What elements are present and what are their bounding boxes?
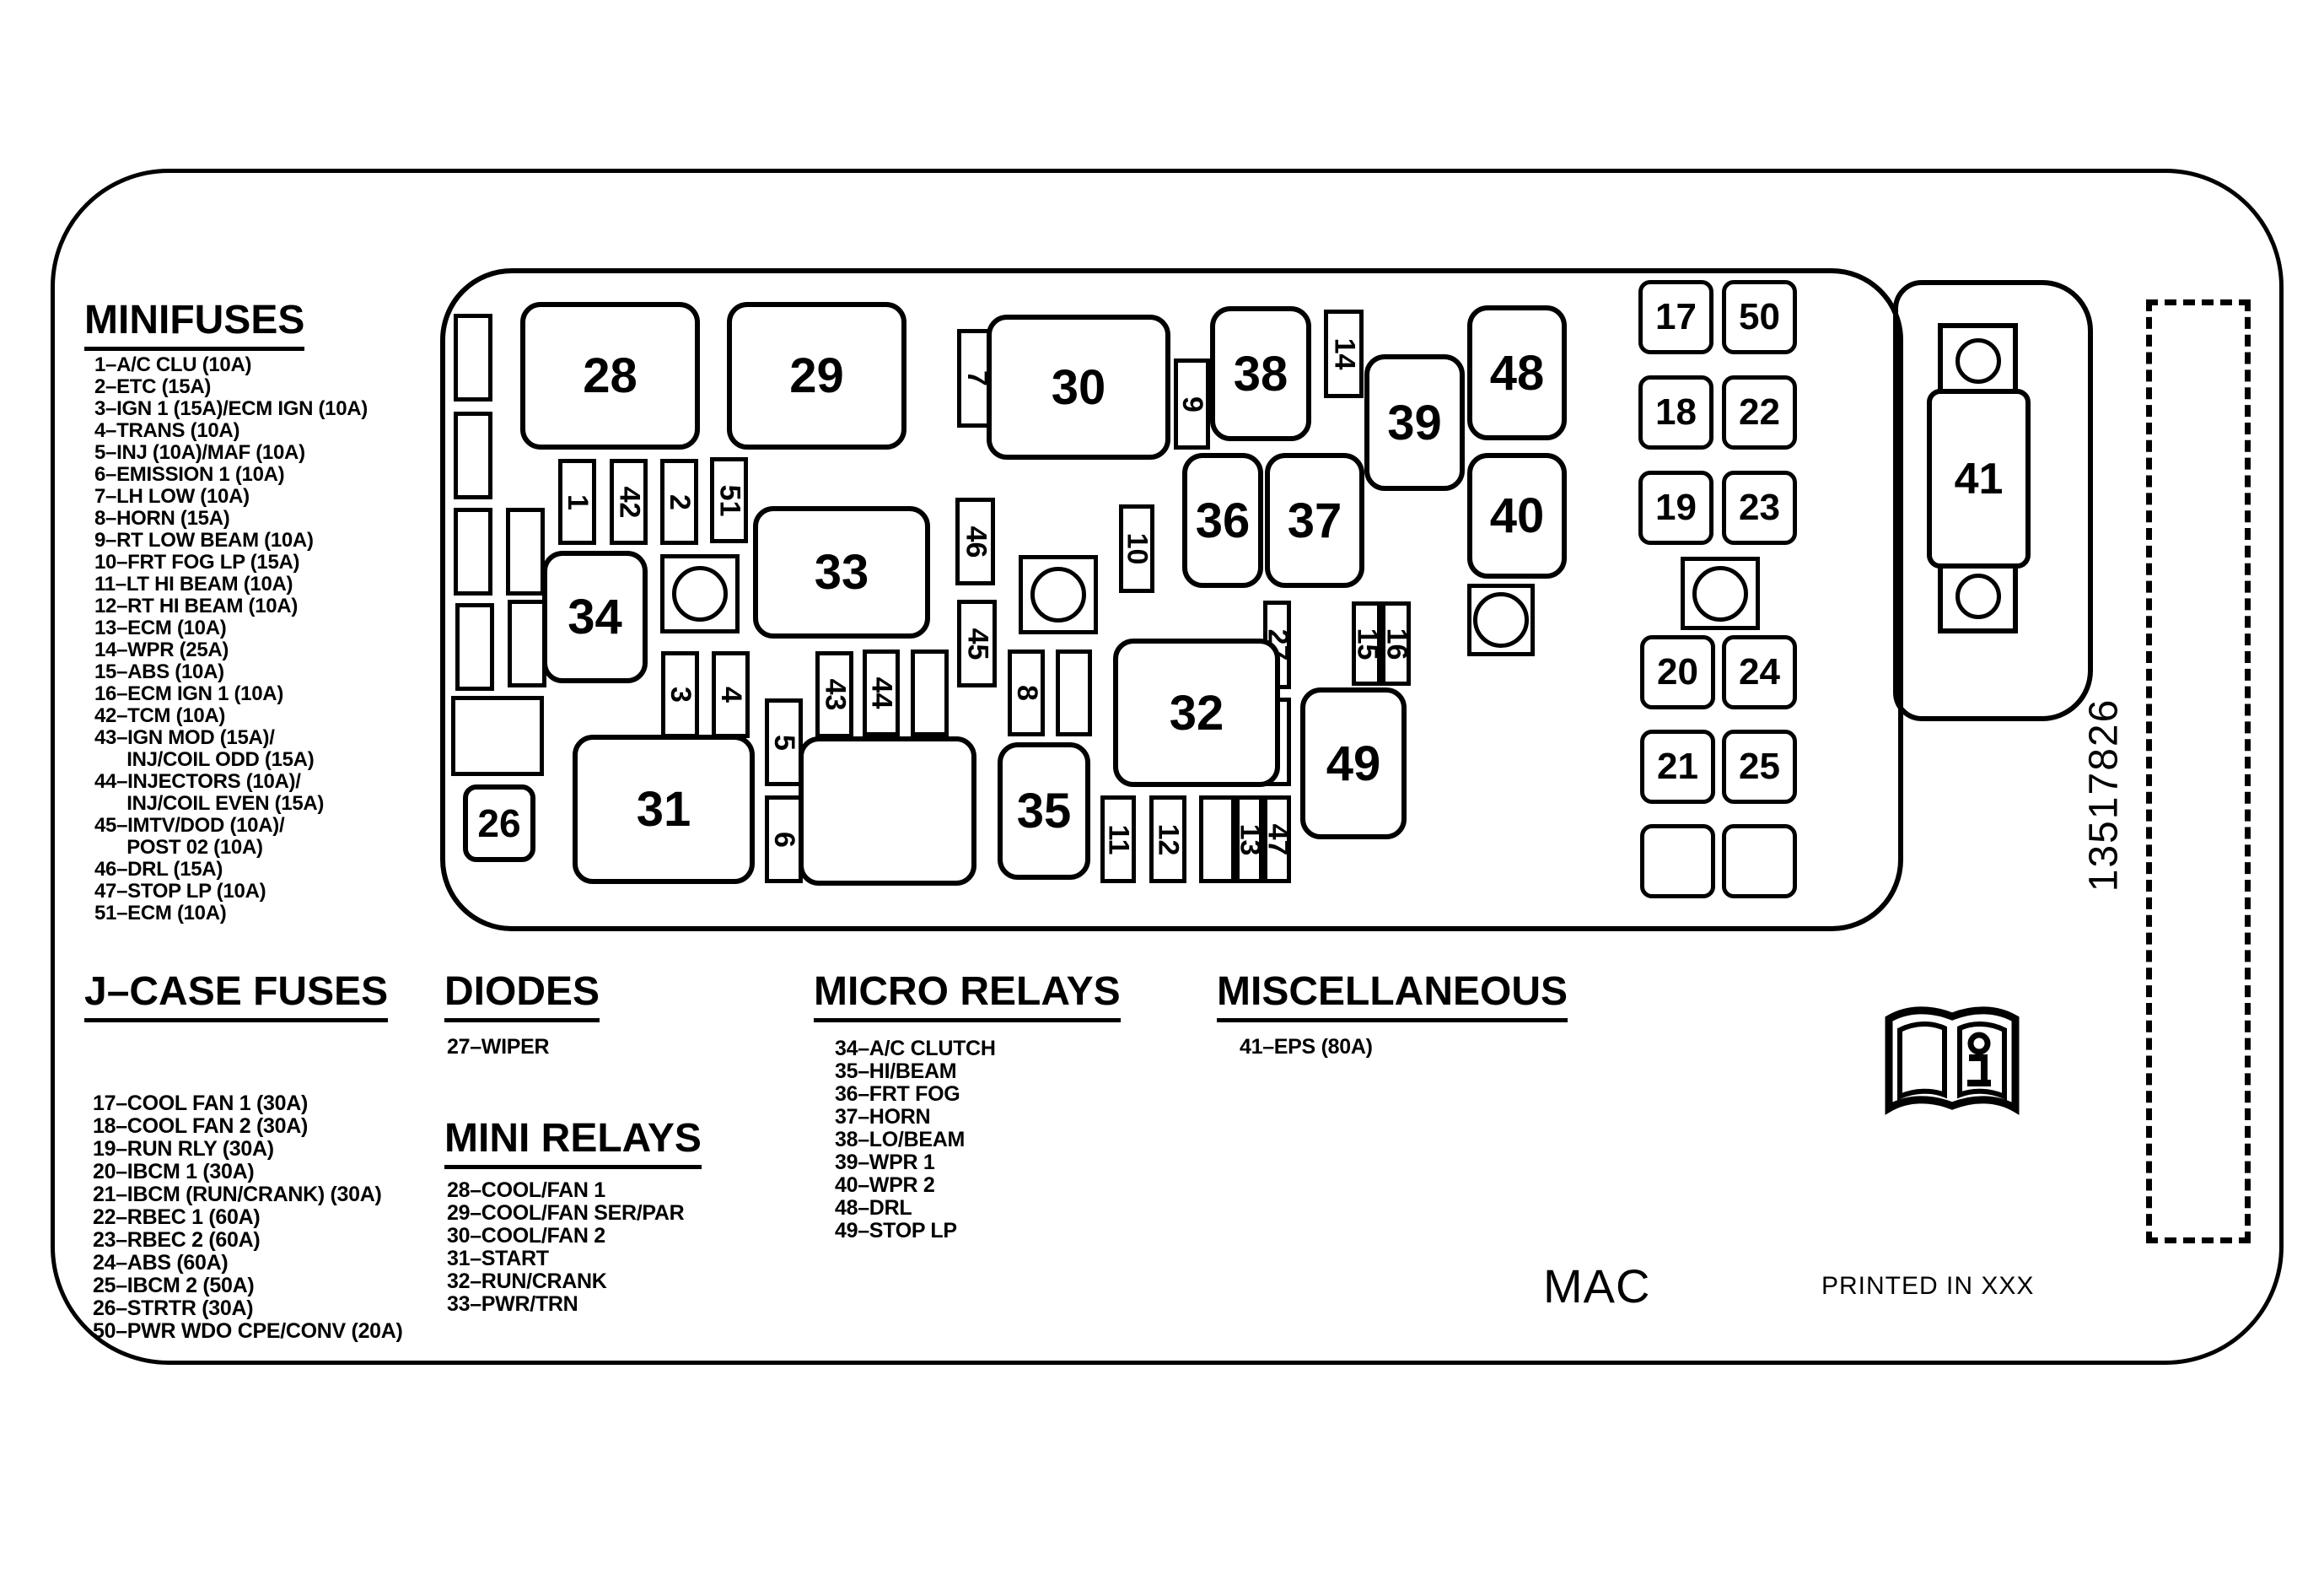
list-item: 41–EPS (80A) [1240, 1036, 1373, 1059]
relay-36: 36 [1182, 453, 1263, 588]
bolt-hole-icon [1955, 574, 2001, 619]
fuse-16: 16 [1381, 601, 1411, 686]
list-item: 42–TCM (10A) [94, 705, 368, 727]
relay-28: 28 [520, 302, 700, 450]
minifuses-list: 1–A/C CLU (10A)2–ETC (15A)3–IGN 1 (15A)/… [94, 354, 368, 924]
fuse-44: 44 [863, 650, 900, 736]
list-item: 1–A/C CLU (10A) [94, 354, 368, 376]
micro-relays-list: 34–A/C CLUTCH35–HI/BEAM36–FRT FOG37–HORN… [835, 1038, 996, 1242]
relay-40: 40 [1467, 453, 1567, 579]
list-item: POST 02 (10A) [94, 837, 368, 859]
list-item: 43–IGN MOD (15A)/ [94, 727, 368, 749]
fuse-13: 13 [1235, 795, 1263, 883]
list-item: 24–ABS (60A) [93, 1252, 403, 1275]
fuse-11: 11 [1100, 795, 1136, 883]
fuse-slot-empty [454, 314, 492, 402]
dashed-outline [2146, 299, 2251, 1243]
list-item: INJ/COIL ODD (15A) [94, 749, 368, 771]
section-title-jcase: J–CASE FUSES [84, 968, 388, 1022]
relay-39: 39 [1364, 354, 1465, 491]
fuse-9: 9 [1174, 358, 1210, 450]
relay-29: 29 [727, 302, 906, 450]
list-item: 40–WPR 2 [835, 1174, 996, 1197]
stud-circle-icon [1030, 567, 1086, 623]
jcase-19: 19 [1638, 471, 1713, 545]
relay-37: 37 [1265, 453, 1364, 588]
fuse-45: 45 [957, 600, 997, 687]
list-item: 15–ABS (10A) [94, 661, 368, 683]
fuse-slot-empty [911, 650, 949, 736]
maxi-fuse-41-bottom-tab [1938, 558, 2018, 633]
fuse-slot-empty [1199, 795, 1235, 883]
list-item: INJ/COIL EVEN (15A) [94, 793, 368, 815]
relay-38: 38 [1210, 306, 1311, 441]
stud-post [660, 554, 740, 633]
list-item: 21–IBCM (RUN/CRANK) (30A) [93, 1183, 403, 1206]
list-item: 16–ECM IGN 1 (10A) [94, 683, 368, 705]
list-item: 31–START [447, 1248, 684, 1270]
list-item: 35–HI/BEAM [835, 1060, 996, 1083]
jcase-25: 25 [1722, 730, 1797, 804]
owner-manual-book-icon [1882, 1004, 2022, 1122]
fuse-43: 43 [815, 651, 853, 738]
list-item: 27–WIPER [447, 1036, 549, 1059]
fuse-slot-empty [506, 508, 545, 596]
relay-26: 26 [463, 784, 535, 862]
list-item: 44–INJECTORS (10A)/ [94, 771, 368, 793]
stud-circle-icon [1473, 592, 1529, 648]
section-title-minifuses: MINIFUSES [84, 297, 304, 351]
list-item: 26–STRTR (30A) [93, 1297, 403, 1320]
list-item: 50–PWR WDO CPE/CONV (20A) [93, 1320, 403, 1343]
list-item: 17–COOL FAN 1 (30A) [93, 1092, 403, 1115]
jcase-50: 50 [1722, 280, 1797, 354]
list-item: 3–IGN 1 (15A)/ECM IGN (10A) [94, 398, 368, 420]
part-number: 13517826 [2081, 644, 2128, 947]
fuse-10: 10 [1119, 504, 1154, 593]
relay-33: 33 [753, 506, 930, 639]
fuse-slot-empty [454, 508, 492, 596]
list-item: 39–WPR 1 [835, 1151, 996, 1174]
fuse-4: 4 [712, 651, 750, 738]
fuse-5: 5 [765, 698, 803, 786]
list-item: 47–STOP LP (10A) [94, 881, 368, 903]
list-item: 34–A/C CLUTCH [835, 1038, 996, 1060]
list-item: 32–RUN/CRANK [447, 1270, 684, 1293]
fuse-47: 47 [1263, 795, 1291, 883]
relay-32: 32 [1113, 639, 1280, 787]
brand-text: MAC [1543, 1259, 1650, 1313]
relay-31: 31 [573, 735, 755, 884]
list-item: 28–COOL/FAN 1 [447, 1179, 684, 1202]
list-item: 25–IBCM 2 (50A) [93, 1275, 403, 1297]
relay-34: 34 [542, 551, 648, 683]
relay-35: 35 [998, 742, 1090, 880]
section-title-micro-relays: MICRO RELAYS [814, 968, 1121, 1022]
jcase-17: 17 [1638, 280, 1713, 354]
jcase-23: 23 [1722, 471, 1797, 545]
relay-30: 30 [987, 315, 1170, 460]
list-item: 46–DRL (15A) [94, 859, 368, 881]
fuse-46: 46 [955, 498, 995, 585]
stud-circle-icon [672, 566, 728, 622]
relay-49: 49 [1300, 687, 1407, 839]
relay-slot-empty [451, 696, 544, 776]
list-item: 18–COOL FAN 2 (30A) [93, 1115, 403, 1138]
stud-post [1467, 584, 1535, 656]
list-item: 30–COOL/FAN 2 [447, 1225, 684, 1248]
section-title-miscellaneous: MISCELLANEOUS [1217, 968, 1568, 1022]
list-item: 36–FRT FOG [835, 1083, 996, 1106]
fuse-slot-empty [1056, 650, 1092, 736]
fuse-1: 1 [558, 459, 596, 545]
list-item: 8–HORN (15A) [94, 508, 368, 530]
fuse-3: 3 [661, 651, 699, 738]
list-item: 38–LO/BEAM [835, 1129, 996, 1151]
fuse-42: 42 [610, 459, 648, 545]
list-item: 6–EMISSION 1 (10A) [94, 464, 368, 486]
list-item: 4–TRANS (10A) [94, 420, 368, 442]
list-item: 14–WPR (25A) [94, 639, 368, 661]
fuse-slot-empty [508, 600, 546, 687]
fuse-14: 14 [1324, 310, 1364, 398]
list-item: 13–ECM (10A) [94, 617, 368, 639]
list-item: 11–LT HI BEAM (10A) [94, 574, 368, 596]
jcase-list: 17–COOL FAN 1 (30A)18–COOL FAN 2 (30A)19… [93, 1092, 403, 1343]
list-item: 9–RT LOW BEAM (10A) [94, 530, 368, 552]
fuse-12: 12 [1149, 795, 1186, 883]
fuse-8: 8 [1008, 650, 1045, 736]
fuse-slot-empty [454, 412, 492, 499]
fuse-2: 2 [660, 459, 698, 545]
jcase-slot-empty [1640, 824, 1715, 898]
jcase-20: 20 [1640, 635, 1715, 709]
bolt-hole-icon [1955, 338, 2001, 384]
mini-relays-list: 28–COOL/FAN 129–COOL/FAN SER/PAR30–COOL/… [447, 1179, 684, 1316]
list-item: 2–ETC (15A) [94, 376, 368, 398]
maxi-fuse-41-top-tab [1938, 323, 2018, 399]
fuse-slot-empty [455, 603, 494, 691]
list-item: 49–STOP LP [835, 1220, 996, 1242]
list-item: 22–RBEC 1 (60A) [93, 1206, 403, 1229]
jcase-21: 21 [1640, 730, 1715, 804]
list-item: 10–FRT FOG LP (15A) [94, 552, 368, 574]
list-item: 37–HORN [835, 1106, 996, 1129]
relay-slot-empty [799, 736, 976, 886]
list-item: 33–PWR/TRN [447, 1293, 684, 1316]
jcase-18: 18 [1638, 375, 1713, 450]
stud-post [1019, 555, 1098, 634]
list-item: 5–INJ (10A)/MAF (10A) [94, 442, 368, 464]
stud-post [1681, 557, 1760, 630]
list-item: 19–RUN RLY (30A) [93, 1138, 403, 1161]
relay-48: 48 [1467, 305, 1567, 440]
printed-in-text: PRINTED IN XXX [1821, 1272, 2034, 1301]
jcase-24: 24 [1722, 635, 1797, 709]
fuse-51: 51 [710, 457, 748, 543]
jcase-slot-empty [1722, 824, 1797, 898]
list-item: 23–RBEC 2 (60A) [93, 1229, 403, 1252]
list-item: 20–IBCM 1 (30A) [93, 1161, 403, 1183]
list-item: 12–RT HI BEAM (10A) [94, 596, 368, 617]
miscellaneous-list: 41–EPS (80A) [1240, 1036, 1373, 1059]
list-item: 51–ECM (10A) [94, 903, 368, 924]
stud-circle-icon [1692, 566, 1748, 622]
list-item: 48–DRL [835, 1197, 996, 1220]
fuse-15: 15 [1352, 601, 1381, 686]
section-title-mini-relays: MINI RELAYS [444, 1115, 702, 1169]
fuse-block-label-page: MINIFUSES 1–A/C CLU (10A)2–ETC (15A)3–IG… [0, 0, 2324, 1574]
section-title-diodes: DIODES [444, 968, 600, 1022]
list-item: 29–COOL/FAN SER/PAR [447, 1202, 684, 1225]
list-item: 7–LH LOW (10A) [94, 486, 368, 508]
maxi-fuse-41: 41 [1927, 389, 2031, 569]
fuse-6: 6 [765, 795, 803, 883]
jcase-22: 22 [1722, 375, 1797, 450]
diodes-list: 27–WIPER [447, 1036, 549, 1059]
list-item: 45–IMTV/DOD (10A)/ [94, 815, 368, 837]
